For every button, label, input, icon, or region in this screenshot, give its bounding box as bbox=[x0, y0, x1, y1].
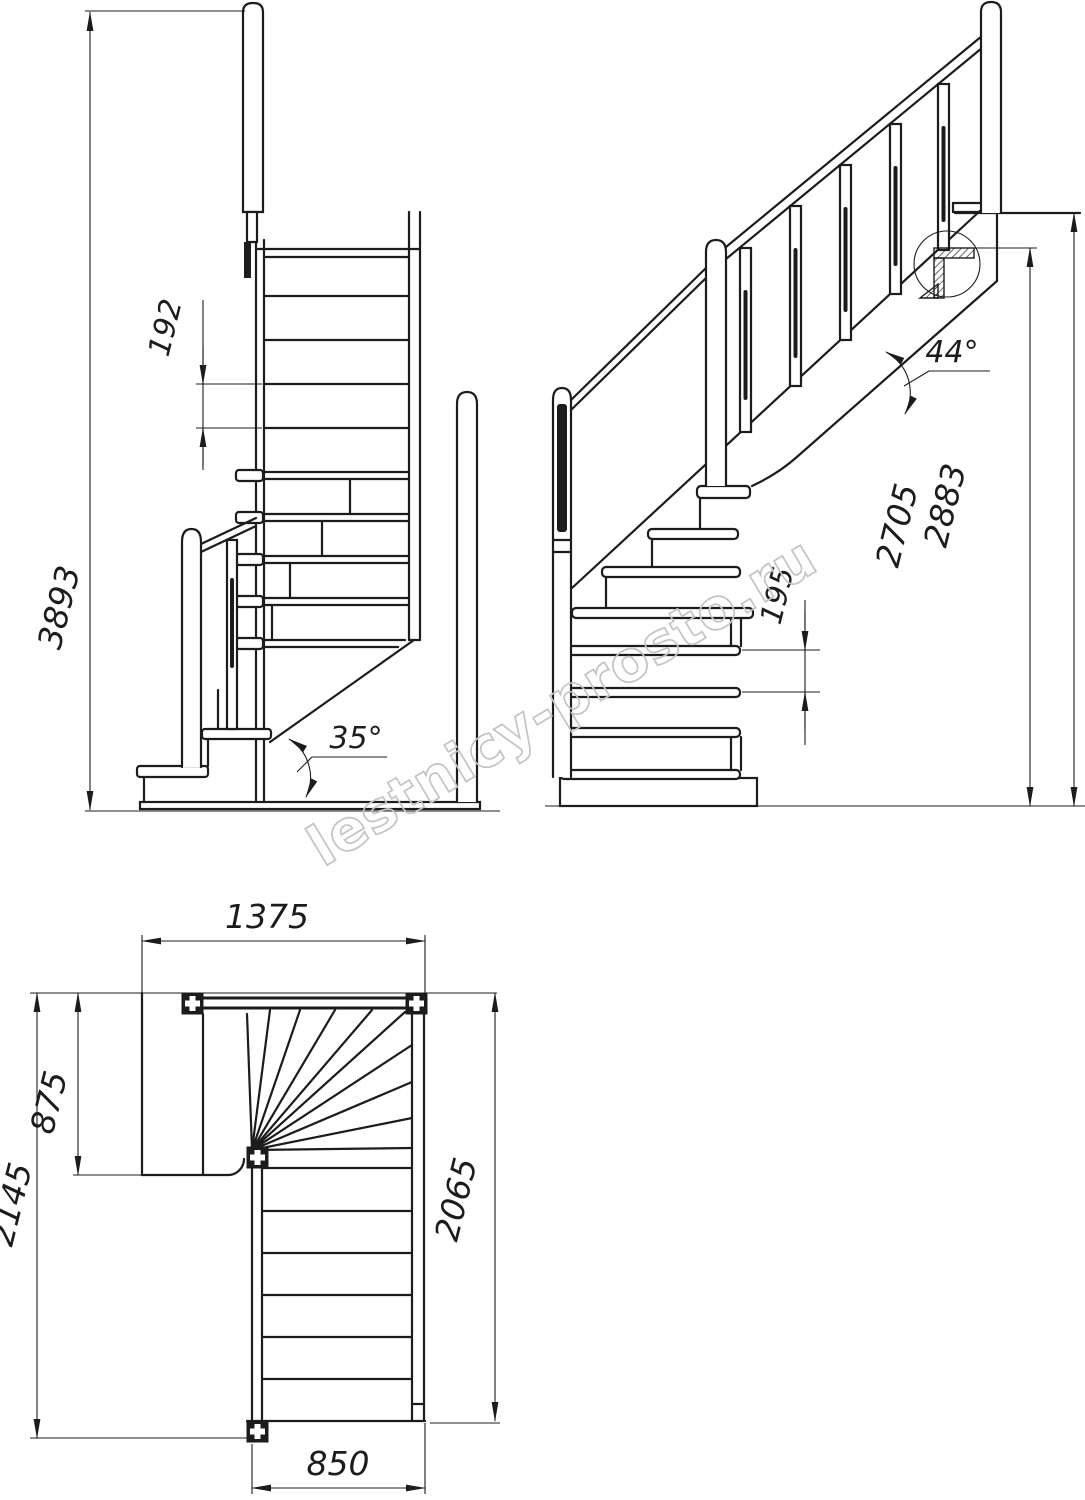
dim-front-total-height: 3893 bbox=[30, 11, 245, 810]
dim-plan-total-depth: 2145 bbox=[0, 993, 40, 1438]
side-stringer-bottom-edge bbox=[752, 281, 997, 486]
dim-label-192: 192 bbox=[142, 296, 190, 360]
angle-label-35: 35° bbox=[329, 721, 382, 756]
side-lower-rail bbox=[571, 268, 706, 400]
plan-lower-flight bbox=[247, 1166, 425, 1421]
dim-side-total-height: 2883 bbox=[916, 213, 1074, 806]
side-mid-newel bbox=[706, 240, 726, 486]
dim-front-riser: 192 bbox=[142, 296, 262, 470]
dim-label-3893: 3893 bbox=[30, 562, 88, 653]
dim-plan-landing-depth: 875 bbox=[22, 993, 78, 1175]
angle-label-44: 44° bbox=[925, 335, 978, 370]
dim-label-2883: 2883 bbox=[916, 460, 974, 551]
front-elevation-view: 3893 192 35° bbox=[30, 3, 500, 811]
stair-drawing-page: 3893 192 35° bbox=[0, 0, 1085, 1500]
dim-label-2065: 2065 bbox=[427, 1154, 485, 1245]
dim-label-2705: 2705 bbox=[868, 480, 926, 571]
front-bottom-steps bbox=[137, 690, 271, 802]
dim-label-850: 850 bbox=[307, 1444, 370, 1483]
plan-view: 1375 875 2145 2065 850 bbox=[0, 897, 500, 1494]
plan-winder-fan bbox=[247, 1010, 412, 1150]
front-top-newel-post bbox=[243, 3, 263, 278]
front-winder-treads bbox=[236, 470, 409, 649]
dim-plan-flight-width: 850 bbox=[252, 1444, 425, 1488]
side-balusters bbox=[740, 84, 949, 432]
dim-plan-top-width: 1375 bbox=[142, 897, 425, 941]
dim-label-2145: 2145 bbox=[0, 1159, 40, 1250]
dim-plan-right-depth: 2065 bbox=[427, 993, 495, 1421]
angle-side-44: 44° bbox=[886, 335, 990, 414]
side-top-newel bbox=[981, 2, 1001, 213]
dim-label-1375: 1375 bbox=[225, 897, 309, 936]
dim-label-875: 875 bbox=[22, 1067, 75, 1138]
stair-drawing: 3893 192 35° bbox=[0, 0, 1085, 1500]
